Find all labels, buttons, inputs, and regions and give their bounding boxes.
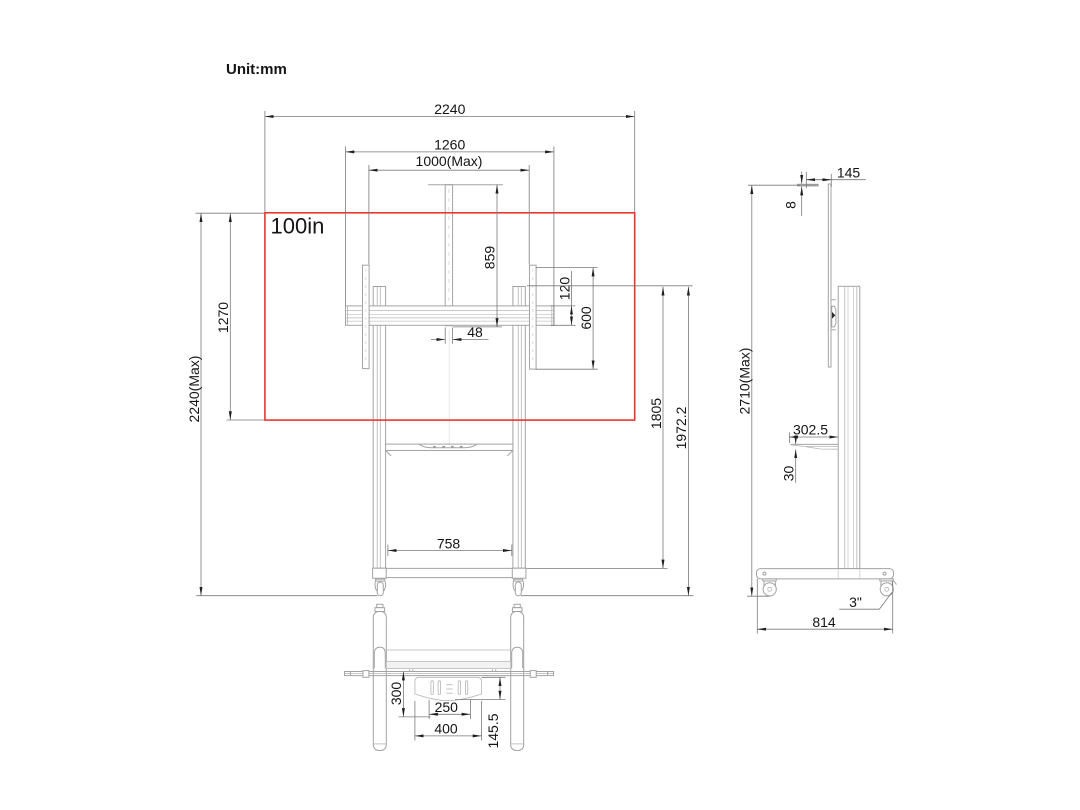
svg-text:30: 30 bbox=[781, 466, 797, 482]
svg-text:1270: 1270 bbox=[215, 302, 231, 333]
svg-text:758: 758 bbox=[437, 535, 461, 551]
svg-text:145.5: 145.5 bbox=[485, 713, 501, 748]
svg-text:2240: 2240 bbox=[434, 101, 465, 117]
svg-text:814: 814 bbox=[812, 614, 836, 630]
svg-text:1260: 1260 bbox=[434, 137, 465, 153]
svg-text:2240(Max): 2240(Max) bbox=[186, 356, 202, 423]
svg-text:1000(Max): 1000(Max) bbox=[416, 153, 483, 169]
svg-text:1972.2: 1972.2 bbox=[673, 406, 689, 449]
svg-text:600: 600 bbox=[578, 306, 594, 330]
svg-text:302.5: 302.5 bbox=[793, 422, 828, 438]
svg-text:3": 3" bbox=[849, 594, 862, 610]
svg-text:1805: 1805 bbox=[648, 398, 664, 429]
svg-text:100in: 100in bbox=[271, 214, 325, 239]
svg-text:48: 48 bbox=[467, 324, 483, 340]
svg-text:400: 400 bbox=[434, 721, 458, 737]
svg-text:250: 250 bbox=[435, 699, 459, 715]
svg-text:145: 145 bbox=[837, 164, 861, 180]
svg-text:8: 8 bbox=[782, 201, 798, 209]
svg-text:300: 300 bbox=[388, 682, 404, 706]
svg-text:2710(Max): 2710(Max) bbox=[737, 348, 753, 415]
svg-text:859: 859 bbox=[482, 246, 498, 270]
svg-text:120: 120 bbox=[556, 277, 572, 301]
svg-text:Unit:mm: Unit:mm bbox=[226, 61, 287, 78]
